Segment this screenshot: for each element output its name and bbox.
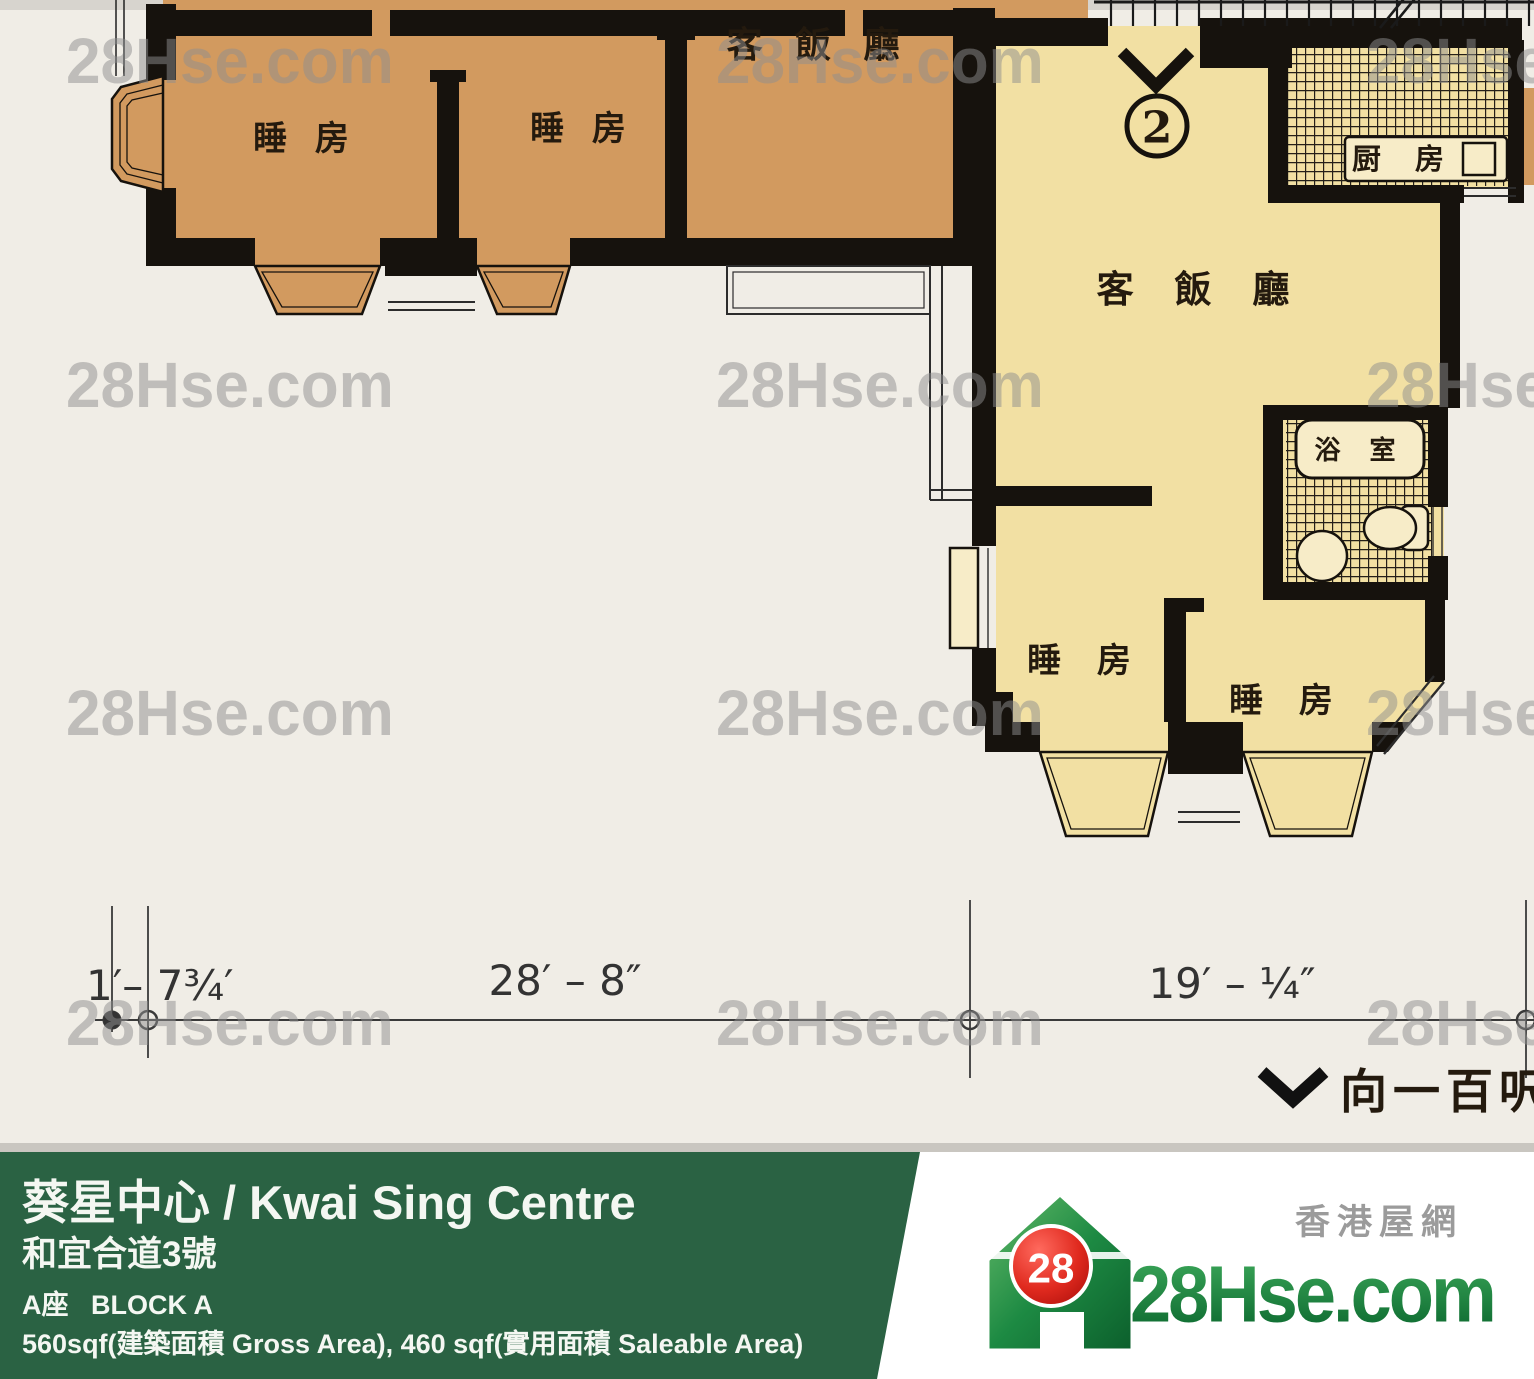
- label-livingdining-a: 客 飯 廳: [726, 24, 909, 66]
- label-livingdining-b: 客 飯 廳: [1097, 267, 1304, 311]
- label-bathroom: 浴 室: [1314, 435, 1405, 466]
- brand-tagline: 香港屋網: [1295, 1194, 1463, 1245]
- unit-b-left-window: [950, 548, 978, 648]
- dim-middle: 28′ – 8″: [488, 956, 641, 1005]
- facing-note: 向一百呎闊: [1340, 1065, 1534, 1120]
- floorplan-page: 睡 房 睡 房 客 飯 廳: [0, 0, 1534, 1379]
- building-name: 葵星中心 / Kwai Sing Centre: [22, 1164, 636, 1233]
- unit-number: 2: [1142, 103, 1173, 154]
- building-address: 和宜合道3號: [22, 1226, 216, 1277]
- stairs-ticks: [1094, 0, 1534, 28]
- label-bedroom-b2: 睡 房: [1229, 681, 1345, 721]
- footer-divider-strip: [0, 1143, 1534, 1152]
- label-bedroom-a2: 睡 房: [530, 109, 634, 149]
- 28hse-house-logo-icon: 28: [985, 1192, 1135, 1354]
- badge-number: 28: [1028, 1245, 1075, 1292]
- brand-wordmark: 28Hse.com: [1130, 1248, 1494, 1340]
- floorplan-canvas: 睡 房 睡 房 客 飯 廳: [0, 0, 1534, 1143]
- label-bedroom-b1: 睡 房: [1027, 641, 1143, 681]
- stove-icon: [1463, 143, 1495, 175]
- area-info: 560sqf(建築面積 Gross Area), 460 sqf(實用面積 Sa…: [22, 1322, 803, 1361]
- dim-right: 19′ – ¼″: [1148, 959, 1315, 1008]
- kitchen-label-box: 厨 房: [1345, 137, 1507, 181]
- dim-left: 1′– 7¾′: [86, 961, 234, 1010]
- footer: 28 28Hse.com 香港屋網 葵星中心 / Kwai Sing Centr…: [0, 1143, 1534, 1379]
- bathroom: 浴 室: [1263, 405, 1448, 600]
- block-label: A座 BLOCK A: [22, 1283, 213, 1322]
- toilet-bowl-icon: [1364, 507, 1416, 549]
- basin-icon: [1297, 531, 1347, 581]
- label-kitchen: 厨 房: [1352, 142, 1456, 176]
- label-bedroom-a1: 睡 房: [253, 119, 357, 159]
- dim-marker: [103, 1011, 121, 1029]
